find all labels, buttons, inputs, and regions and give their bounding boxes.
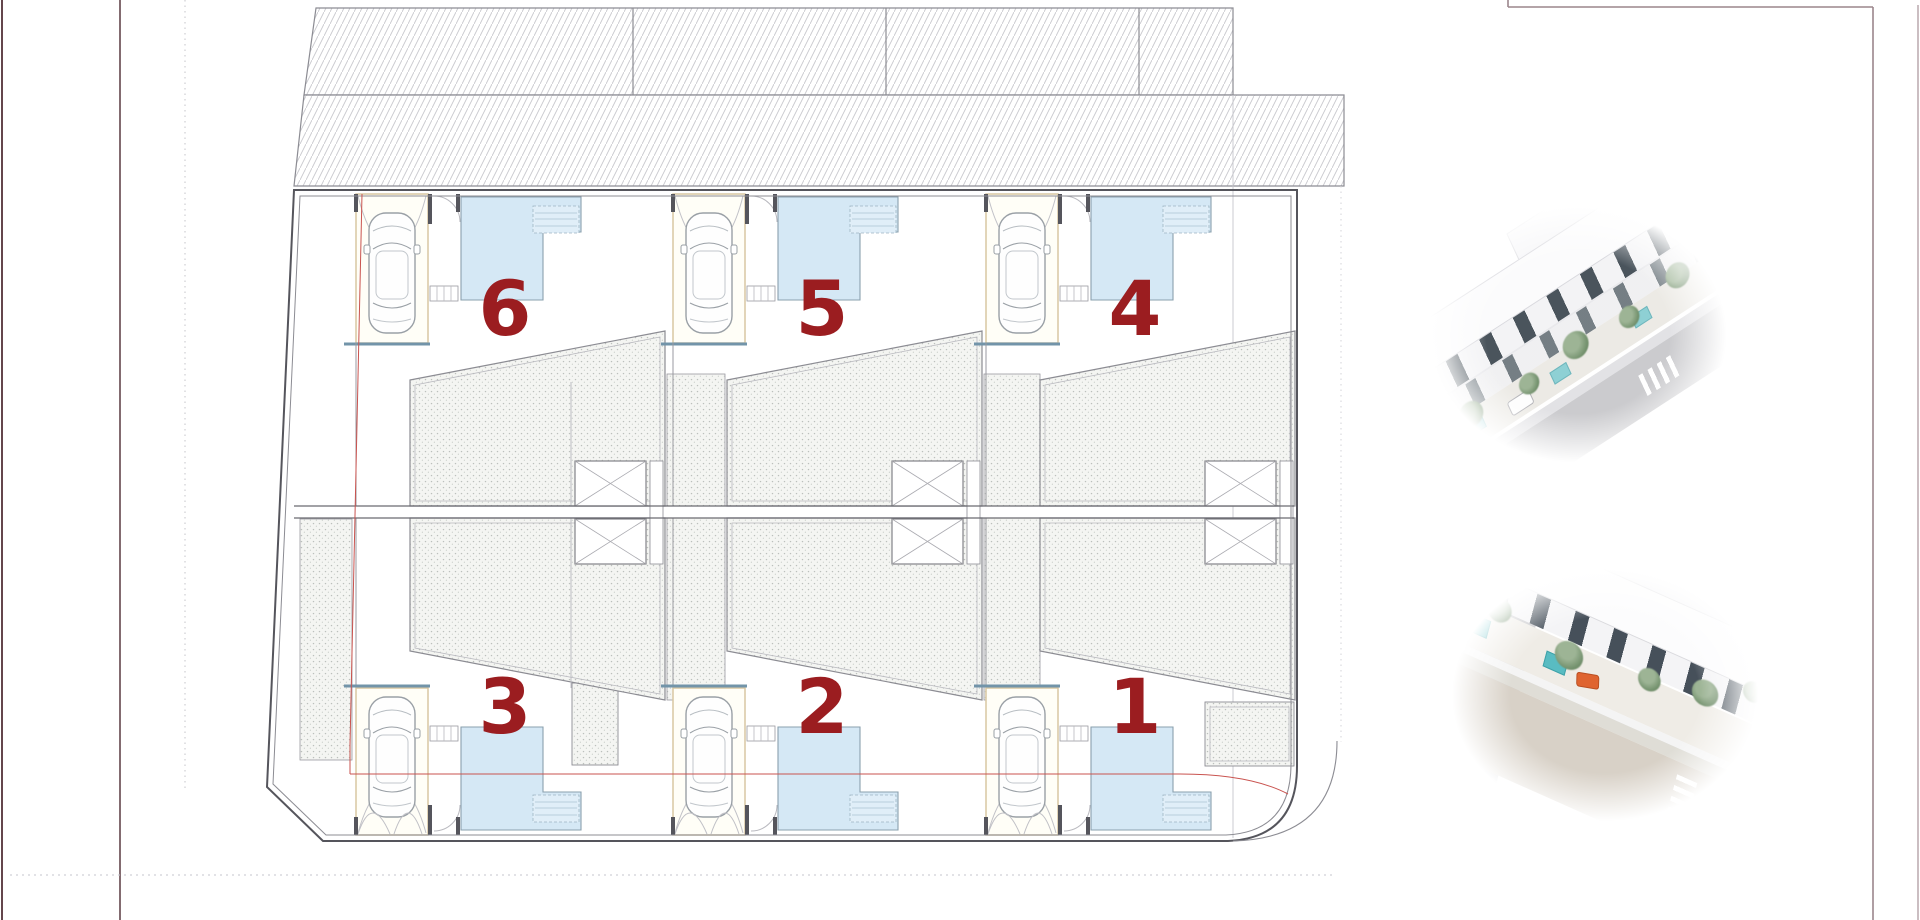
unit-label-6: 6 [479,271,532,347]
party-wall [294,506,1294,518]
unit-label-3: 3 [479,669,532,745]
roof-band [304,8,1233,95]
render-fade [1408,182,1748,487]
unit-label-2: 2 [796,669,849,745]
site-plan-page: 6 5 4 3 2 1 [0,0,1920,920]
unit-label-5: 5 [796,271,849,347]
exterior-render-bottom [1430,545,1780,845]
exterior-render-top [1408,182,1748,487]
unit-label-1: 1 [1109,669,1162,745]
sidewalk-band [294,95,1344,186]
unit-label-4: 4 [1109,271,1162,347]
render-fade [1430,545,1780,845]
